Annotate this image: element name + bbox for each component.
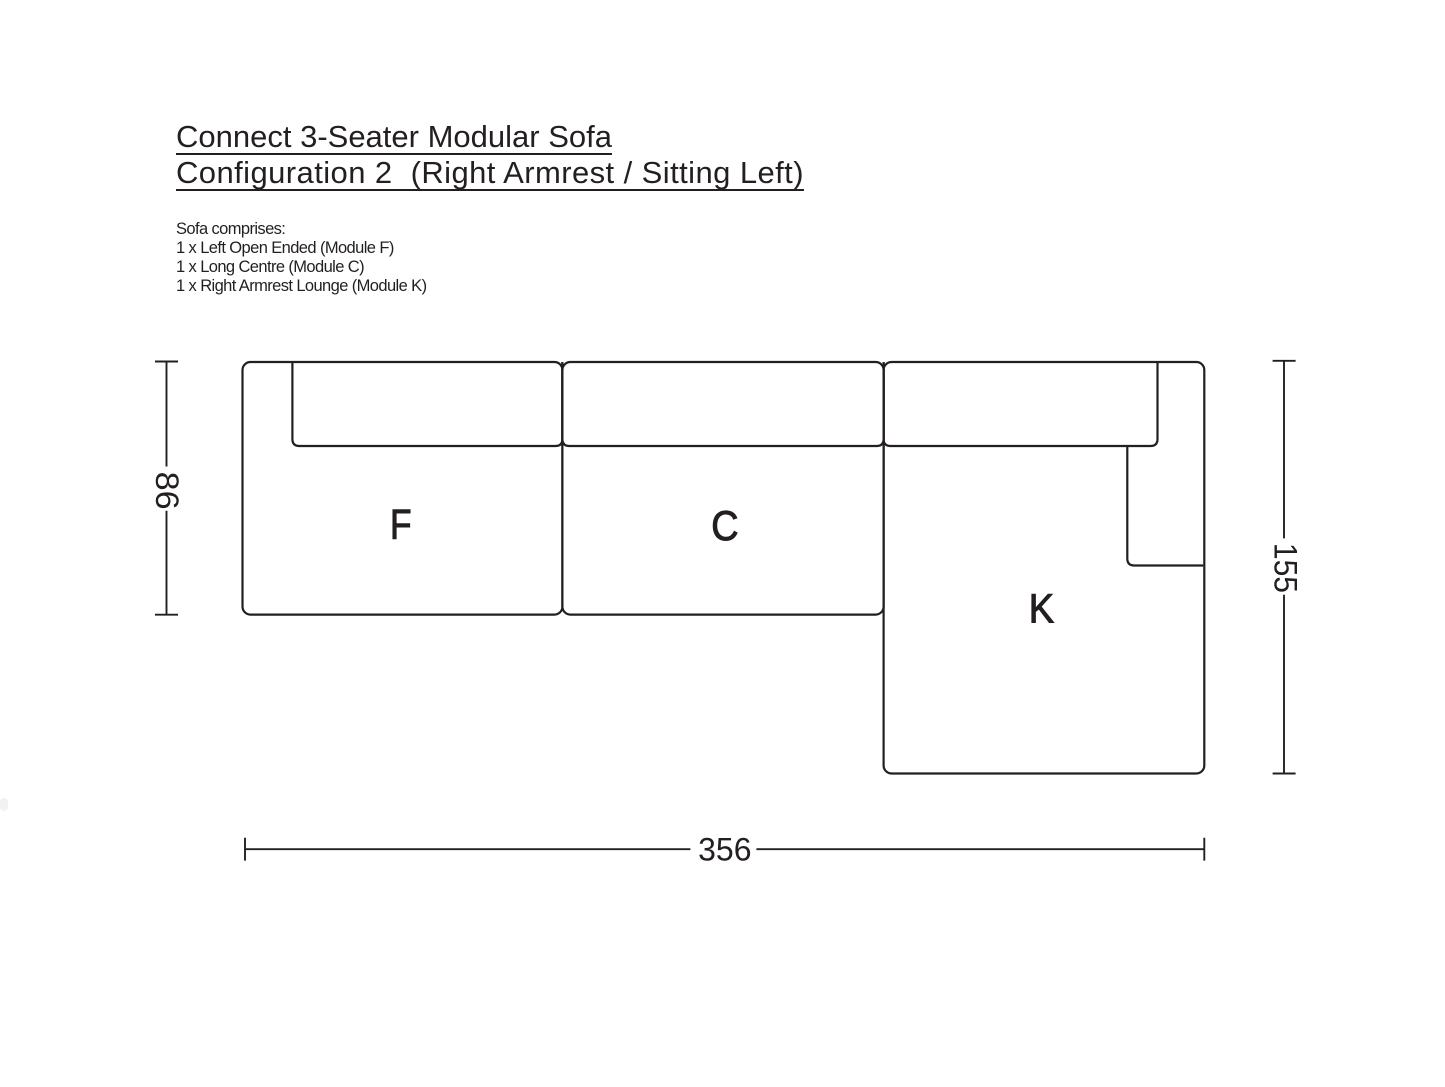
svg-text:K: K bbox=[1029, 586, 1054, 631]
svg-text:86: 86 bbox=[149, 472, 185, 510]
svg-text:155: 155 bbox=[1268, 543, 1304, 593]
svg-text:C: C bbox=[711, 503, 738, 549]
svg-text:F: F bbox=[390, 502, 412, 549]
svg-text:356: 356 bbox=[698, 831, 751, 867]
